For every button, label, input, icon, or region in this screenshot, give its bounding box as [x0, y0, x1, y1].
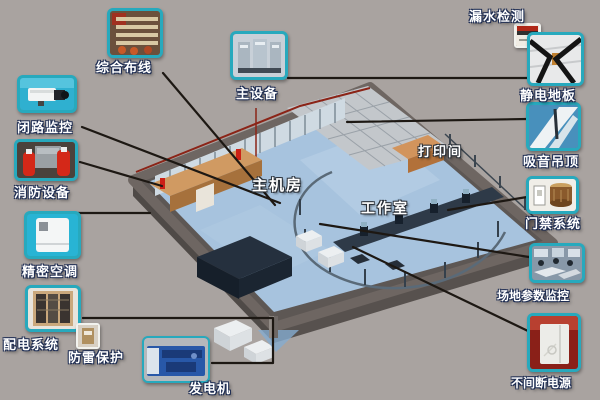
generator-thumbnail [142, 336, 210, 383]
fire-extinguisher-icon [17, 142, 75, 178]
label-site-monitor: 场地参数监控 [497, 287, 569, 304]
label-print-room: 打印间 [418, 141, 463, 160]
access-thumbnail [526, 176, 579, 214]
cctv-camera-icon [20, 78, 74, 110]
cabling-thumbnail [107, 8, 163, 58]
label-cabling: 综合布线 [96, 57, 152, 76]
label-work-room: 工作室 [361, 198, 409, 218]
label-generator: 发电机 [189, 378, 231, 397]
label-cctv: 闭路监控 [17, 117, 73, 136]
label-fire: 消防设备 [14, 182, 70, 201]
label-ac: 精密空调 [22, 261, 78, 280]
site-monitor-thumbnail [529, 243, 585, 283]
label-access: 门禁系统 [525, 213, 581, 232]
label-leak: 漏水检测 [469, 6, 525, 25]
ups-unit-icon [530, 316, 578, 369]
antistatic-thumbnail [527, 32, 584, 86]
label-power: 配电系统 [3, 334, 59, 353]
air-conditioner-icon [27, 214, 78, 256]
label-main-room: 主机房 [252, 174, 303, 195]
ceiling-thumbnail [526, 102, 581, 151]
access-control-icon [529, 179, 576, 211]
label-ceiling: 吸音吊顶 [523, 151, 579, 170]
power-thumbnail [25, 285, 81, 332]
fire-thumbnail [14, 139, 78, 181]
cctv-thumbnail [17, 75, 77, 113]
monitoring-room-icon [532, 246, 582, 280]
ups-thumbnail [527, 313, 581, 372]
label-lightning: 防雷保护 [68, 347, 124, 366]
distribution-cabinet-icon [28, 288, 78, 329]
lightning-thumbnail [76, 323, 100, 349]
machine-room-diagram: 综合布线 闭路监控 消防设备 精密空调 配电系统 防雷保护 发电机 主设备 漏水… [0, 0, 600, 400]
suspended-ceiling-icon [529, 105, 578, 148]
surge-protector-icon [78, 325, 98, 347]
generator-icon [144, 338, 208, 381]
server-towers-icon [233, 34, 285, 77]
label-antistatic: 静电地板 [520, 85, 576, 104]
cabling-rack-icon [110, 11, 160, 55]
raised-floor-icon [530, 35, 581, 83]
ac-thumbnail [24, 211, 81, 259]
label-ups: 不间断电源 [511, 374, 571, 391]
main-equipment-thumbnail [230, 31, 288, 80]
label-main-equipment: 主设备 [236, 83, 278, 102]
